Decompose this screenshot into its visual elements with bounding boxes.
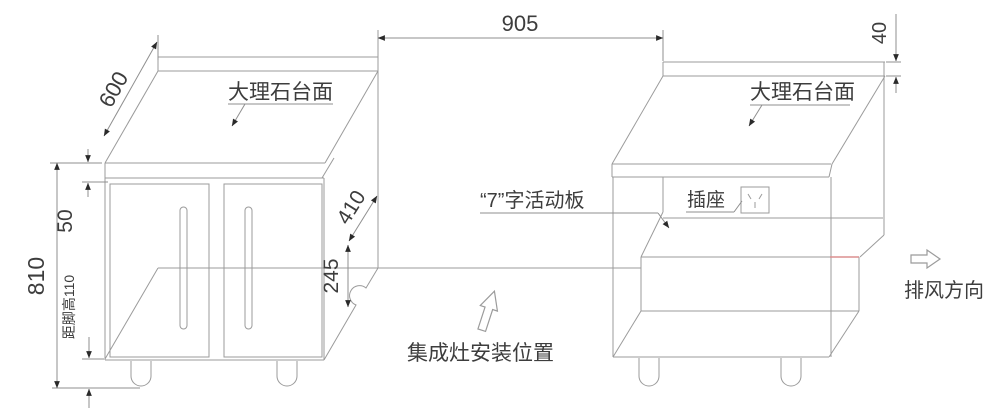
stove-position-arrow-icon xyxy=(473,288,503,333)
dim-gap-width: 905 xyxy=(502,11,539,36)
label-socket: 插座 xyxy=(686,189,742,212)
right-cabinet-feet xyxy=(639,358,801,386)
left-cabinet-feet xyxy=(131,361,297,386)
stove-position: 集成灶安装位置 xyxy=(407,288,554,365)
dim-countertop-depth: 600 xyxy=(94,67,134,111)
countertop-right-label: 大理石台面 xyxy=(750,81,855,104)
dimension-905: 905 xyxy=(378,11,663,38)
dim-side-depth: 410 xyxy=(332,187,370,229)
label-countertop-right: 大理石台面 xyxy=(749,81,855,126)
dim-top-gap: 50 xyxy=(54,209,77,232)
exhaust-direction-label: 排风方向 xyxy=(904,279,984,302)
dim-total-height: 810 xyxy=(23,257,49,295)
socket-label: 插座 xyxy=(687,189,725,211)
technical-drawing-canvas: 905 600 810 50 距脚高110 410 245 40 xyxy=(0,0,1000,419)
right-door xyxy=(224,184,322,357)
label-countertop-left: 大理石台面 xyxy=(228,81,333,126)
label-movable-panel: “7”字活动板 xyxy=(480,189,669,228)
right-countertop xyxy=(612,62,885,177)
left-countertop xyxy=(105,57,378,178)
movable-panel-label: “7”字活动板 xyxy=(480,189,584,212)
diagram-svg: 905 600 810 50 距脚高110 410 245 40 xyxy=(0,0,1000,419)
dim-countertop-thickness: 40 xyxy=(869,22,891,44)
exhaust-arrow-icon xyxy=(911,250,940,268)
dim-foot-height: 距脚高110 xyxy=(61,275,77,340)
dimension-50: 50 xyxy=(54,149,108,233)
stove-position-label: 集成灶安装位置 xyxy=(407,342,554,365)
dimension-40: 40 xyxy=(869,14,901,93)
exhaust-direction: 排风方向 xyxy=(904,250,984,302)
left-door xyxy=(110,184,209,357)
dimension-410: 410 xyxy=(332,187,377,241)
dimension-810: 810 xyxy=(23,163,140,388)
right-cabinet-body xyxy=(613,30,884,357)
socket-icon xyxy=(741,187,769,213)
dim-recess-height: 245 xyxy=(320,258,343,293)
countertop-left-label: 大理石台面 xyxy=(228,81,333,104)
